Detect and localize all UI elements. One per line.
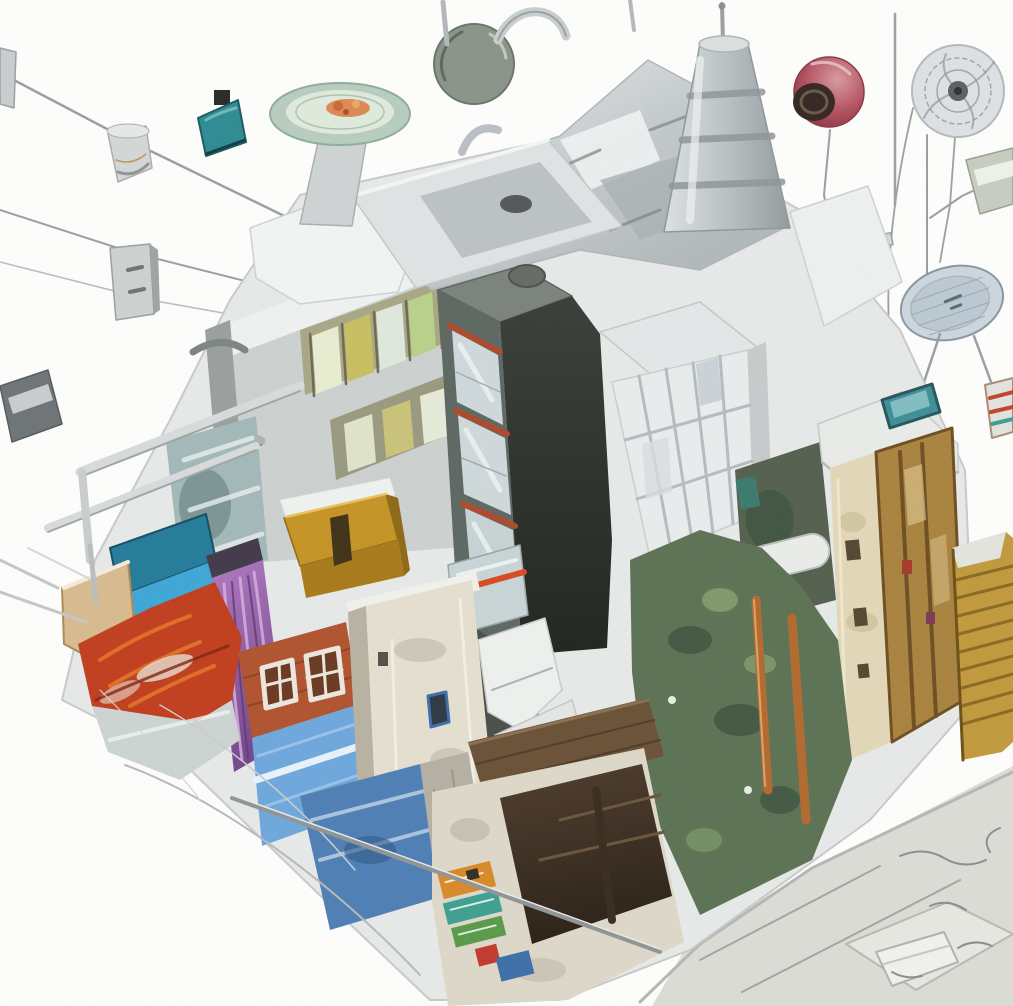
paper-grain-overlay xyxy=(0,0,1013,1006)
illustration: Surreal isometric city-block collage xyxy=(0,0,1013,1006)
scene-canvas xyxy=(0,0,1013,1006)
